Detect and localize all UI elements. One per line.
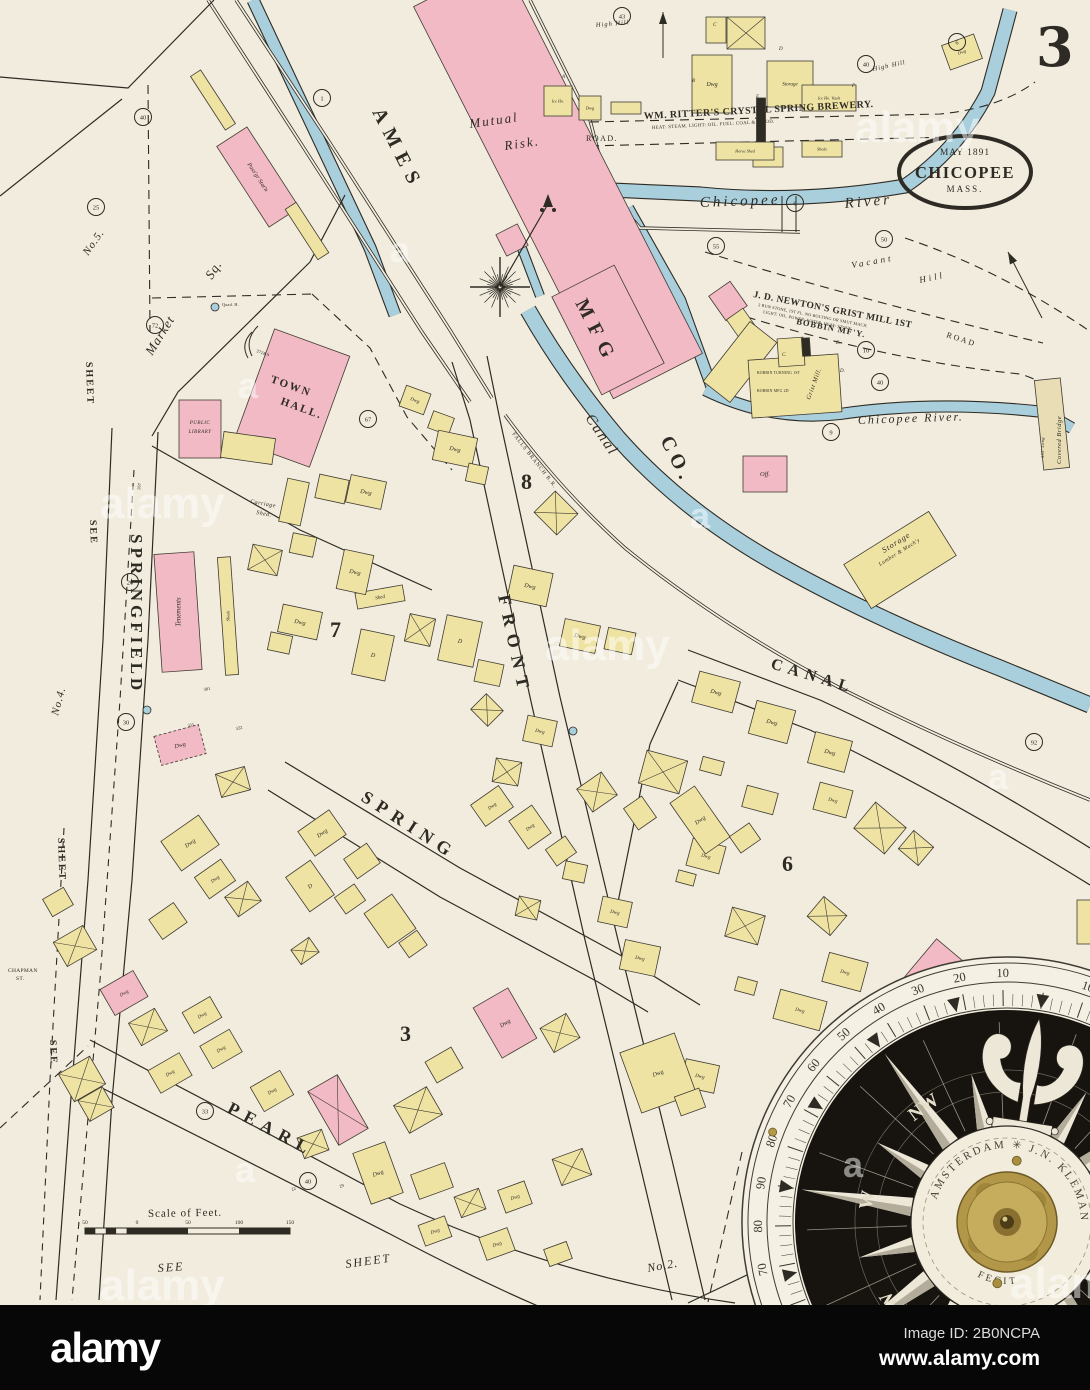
building bbox=[179, 400, 221, 458]
map-label: Scale of Feet. bbox=[148, 1207, 222, 1220]
svg-text:9: 9 bbox=[829, 429, 832, 436]
alamy-stock-image: Off.Pass'gr Stat'nShedTenementsShedsDwgD… bbox=[0, 0, 1090, 1390]
alamy-footer-bar: alamy Image ID: 2B0NCPA www.alamy.com bbox=[0, 1305, 1090, 1390]
compass-degree: 90 bbox=[753, 1176, 769, 1191]
svg-text:40: 40 bbox=[877, 379, 884, 386]
map-label: BOBBIN TURNING 1ST bbox=[757, 371, 801, 375]
svg-text:33: 33 bbox=[202, 1108, 209, 1115]
building bbox=[706, 17, 726, 43]
alamy-watermark: a bbox=[238, 365, 259, 406]
image-meta: Image ID: 2B0NCPA www.alamy.com bbox=[879, 1325, 1040, 1371]
building: Dwg bbox=[692, 55, 732, 113]
district-number: 8 bbox=[521, 469, 532, 494]
building: Sheds bbox=[802, 141, 842, 157]
building: Off. bbox=[743, 456, 787, 492]
svg-text:50: 50 bbox=[185, 1220, 191, 1226]
building bbox=[777, 337, 805, 367]
building bbox=[404, 614, 435, 647]
building bbox=[727, 17, 765, 49]
svg-text:Ice Ho.: Ice Ho. bbox=[551, 98, 564, 103]
map-label: C. bbox=[782, 353, 787, 358]
image-id: Image ID: 2B0NCPA bbox=[879, 1325, 1040, 1342]
map-label: E bbox=[755, 95, 759, 100]
building: Dwg bbox=[523, 715, 558, 747]
alamy-watermark: a bbox=[843, 1144, 864, 1185]
svg-text:Sheds: Sheds bbox=[817, 146, 827, 151]
district-number: 7 bbox=[330, 617, 341, 642]
sheet-number: 3 bbox=[1036, 15, 1074, 79]
alamy-logo: alamy bbox=[50, 1327, 159, 1369]
compass-direction: W bbox=[855, 1189, 879, 1211]
svg-text:1: 1 bbox=[320, 95, 323, 102]
svg-text:Storage: Storage bbox=[782, 83, 798, 88]
svg-text:150: 150 bbox=[286, 1220, 295, 1226]
building: Horse Shed bbox=[716, 142, 774, 160]
map-label: CHAPMAN bbox=[8, 968, 38, 974]
svg-text:40: 40 bbox=[863, 61, 870, 68]
svg-text:92: 92 bbox=[1031, 739, 1038, 746]
alamy-watermark: a bbox=[390, 229, 411, 270]
map-label: ST. bbox=[16, 976, 25, 982]
svg-text:Tenements: Tenements bbox=[174, 597, 182, 627]
alamy-url: www.alamy.com bbox=[879, 1347, 1040, 1371]
water-dot bbox=[211, 303, 219, 311]
building bbox=[611, 102, 641, 114]
map-label: Covered Bridge bbox=[1056, 416, 1063, 464]
water-dot bbox=[143, 706, 151, 714]
map-city: CHICOPEE bbox=[915, 163, 1015, 182]
svg-text:30: 30 bbox=[123, 719, 130, 726]
svg-text:Dwg: Dwg bbox=[585, 106, 595, 111]
svg-text:25: 25 bbox=[93, 204, 100, 211]
alamy-watermark: alamy bbox=[100, 479, 225, 528]
alamy-watermark: alamy bbox=[1010, 1259, 1090, 1305]
svg-text:50: 50 bbox=[881, 236, 888, 243]
building bbox=[492, 758, 522, 786]
map-label: 335' Long bbox=[1040, 437, 1045, 458]
svg-text:Dwg: Dwg bbox=[705, 82, 717, 88]
svg-text:55: 55 bbox=[713, 243, 720, 250]
sanborn-map: Off.Pass'gr Stat'nShedTenementsShedsDwgD… bbox=[0, 0, 1090, 1305]
alamy-watermark: a bbox=[235, 1149, 256, 1190]
svg-text:Ice Ho. Vault: Ice Ho. Vault bbox=[817, 95, 841, 100]
map-state: MASS. bbox=[947, 184, 984, 194]
map-label: E. bbox=[835, 341, 840, 346]
map-label: SPRINGFIELD bbox=[127, 534, 146, 694]
map-label: LIBRARY bbox=[188, 430, 213, 435]
water-dot bbox=[569, 727, 577, 735]
alamy-watermark: alamy bbox=[100, 1261, 225, 1305]
building bbox=[801, 338, 810, 357]
building bbox=[465, 463, 488, 485]
compass-degree: 20 bbox=[952, 970, 967, 986]
svg-text:Horse Shed: Horse Shed bbox=[734, 148, 755, 153]
svg-text:10: 10 bbox=[863, 347, 870, 354]
map-label: D bbox=[778, 47, 783, 52]
map-label: PUBLIC bbox=[189, 421, 211, 426]
building: Ice Ho. bbox=[544, 86, 572, 116]
map-label: ROAD. bbox=[586, 134, 618, 143]
district-number: 6 bbox=[782, 851, 793, 876]
district-number: 3 bbox=[400, 1021, 411, 1046]
svg-text:72: 72 bbox=[152, 322, 159, 329]
map-label: SEE bbox=[87, 520, 99, 545]
svg-text:67: 67 bbox=[365, 416, 372, 423]
building: Dwg bbox=[579, 96, 601, 120]
compass-degree: 70 bbox=[755, 1262, 771, 1277]
map-label: BOBBIN MFG 2D bbox=[757, 389, 789, 393]
alamy-watermark: a bbox=[690, 495, 711, 536]
alamy-watermark: a bbox=[988, 756, 1009, 797]
svg-text:50: 50 bbox=[82, 1220, 88, 1226]
svg-text:Sheds: Sheds bbox=[226, 611, 231, 622]
alamy-watermark: alamy bbox=[855, 103, 980, 152]
building: Dwg bbox=[598, 896, 633, 928]
svg-text:43: 43 bbox=[619, 13, 626, 20]
svg-text:40: 40 bbox=[140, 114, 147, 121]
map-label: SHEET bbox=[83, 362, 96, 406]
svg-text:0: 0 bbox=[136, 1220, 139, 1226]
alamy-watermark: alamy bbox=[545, 621, 670, 670]
map-label: D. bbox=[839, 369, 845, 374]
building bbox=[515, 896, 541, 920]
page-number: 3 bbox=[1036, 15, 1074, 79]
svg-text:20: 20 bbox=[127, 579, 134, 586]
compass-degree: 10 bbox=[996, 966, 1009, 980]
map-label: Chicopee bbox=[700, 192, 781, 211]
map-label: B bbox=[692, 79, 695, 84]
svg-text:40: 40 bbox=[305, 1178, 312, 1185]
building bbox=[248, 544, 283, 576]
compass-degree: 80 bbox=[751, 1220, 765, 1233]
building bbox=[1077, 900, 1090, 944]
svg-text:Off.: Off. bbox=[760, 471, 770, 478]
map-label: SHEET bbox=[55, 838, 68, 882]
svg-text:100: 100 bbox=[235, 1220, 244, 1226]
map-label: Quad. H. bbox=[222, 302, 239, 307]
map-label: SEE bbox=[47, 1040, 59, 1065]
building: Tenements bbox=[154, 552, 202, 673]
